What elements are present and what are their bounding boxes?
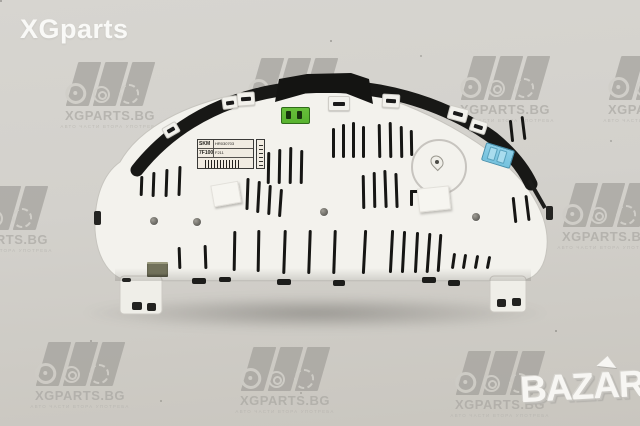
wheel-icon — [65, 83, 86, 104]
screw-icon — [320, 208, 328, 216]
watermark-brand-text: XGPARTS.BG — [552, 229, 640, 244]
side-label-marks — [259, 142, 263, 166]
label-cell: SKM — [198, 140, 214, 148]
watermark-brand-text: XGPARTS.BG — [0, 232, 58, 247]
bottom-clip — [192, 278, 206, 284]
watermark-tagline: АВТО ЧАСТИ ВТОРА УПОТРЕБА — [230, 409, 340, 414]
logo-parallelogram — [608, 56, 640, 100]
vent-slot — [373, 172, 377, 208]
product-photo: XGPARTS.BG АВТО ЧАСТИ ВТОРА УПОТРЕБА XGP… — [0, 0, 640, 426]
bottom-clip — [422, 277, 436, 283]
watermark-tile: XGPARTS.BG АВТО ЧАСТИ ВТОРА УПОТРЕБА — [230, 347, 340, 414]
bearing-icon — [89, 364, 109, 384]
clutch-disc-icon — [0, 210, 2, 227]
vent-slot — [278, 149, 282, 184]
vent-slot — [342, 124, 345, 158]
vent-slot — [332, 128, 335, 158]
screw-icon — [150, 217, 158, 225]
vent-slot — [267, 152, 271, 184]
side-label — [256, 139, 265, 169]
bottom-clip — [219, 277, 231, 282]
edge-notch — [122, 278, 131, 282]
label-cell: F211 — [214, 149, 253, 157]
wheel-icon — [562, 204, 583, 225]
inner-shadow — [115, 268, 531, 281]
part-label: SKM HR030703 7F100 F211 — [197, 139, 254, 169]
instrument-cluster: SKM HR030703 7F100 F211 — [93, 72, 555, 324]
watermark-tile: XGPARTS.BG АВТО ЧАСТИ ВТОРА УПОТРЕБА — [552, 183, 640, 250]
latch-tab-hole — [474, 123, 484, 130]
olive-component — [147, 262, 168, 277]
label-barcode — [205, 160, 241, 168]
vent-slot — [410, 130, 413, 156]
watermark-tile: XGPARTS.BG АВТО ЧАСТИ ВТОРА УПОТРЕБА — [598, 56, 640, 123]
xgparts-logo-icon — [25, 342, 135, 386]
watermark-tagline: АВТО ЧАСТИ ВТОРА УПОТРЕБА — [25, 404, 135, 409]
green-connector — [281, 107, 310, 124]
xgparts-logo-icon — [552, 183, 640, 227]
clutch-disc-icon — [589, 207, 606, 224]
vent-slot — [362, 175, 366, 209]
watermark-brand-text: XGPARTS.BG — [230, 393, 340, 408]
watermark-tile: XGPARTS.BG АВТО ЧАСТИ ВТОРА УПОТРЕБА — [25, 342, 135, 409]
screw-icon — [193, 218, 201, 226]
right-edge-clip — [546, 206, 553, 220]
watermark-brand-text: XGPARTS.BG — [25, 388, 135, 403]
left-edge-clip — [94, 211, 101, 225]
xgparts-logo-icon — [230, 347, 340, 391]
white-plate-right — [417, 185, 451, 212]
teardrop-center-hole — [435, 160, 439, 164]
latch-tab-hole — [241, 97, 251, 102]
foot-hole — [147, 303, 156, 311]
bazar-watermark: BAZAR — [519, 363, 640, 411]
watermark-tagline: АВТО ЧАСТИ ВТОРА УПОТРЕБА — [0, 248, 58, 253]
screw-icon — [472, 213, 480, 221]
cluster-white-body — [95, 87, 547, 281]
site-logo-text: XGparts — [20, 14, 129, 45]
bearing-icon — [12, 208, 32, 228]
vent-slot — [400, 126, 404, 158]
label-cell: HR030703 — [214, 140, 253, 148]
wheel-icon — [608, 77, 629, 98]
mounting-foot-right — [490, 276, 526, 312]
bottom-clip — [277, 279, 291, 285]
latch-tab — [382, 94, 401, 109]
xgparts-logo-icon — [598, 56, 640, 100]
xgparts-logo-icon — [0, 186, 58, 230]
clutch-disc-icon — [62, 366, 79, 383]
latch-tab-hole — [166, 126, 175, 134]
vent-slot — [352, 122, 355, 158]
latch-tab — [328, 96, 350, 111]
vent-slot — [300, 150, 304, 184]
vent-slot — [389, 122, 393, 158]
latch-tab — [237, 91, 256, 106]
clutch-disc-icon — [267, 371, 284, 388]
watermark-tile: XGPARTS.BG АВТО ЧАСТИ ВТОРА УПОТРЕБА — [0, 186, 58, 253]
connector-pin-slot — [297, 111, 302, 119]
vent-slot — [289, 147, 293, 184]
connector-pin-slot — [286, 111, 291, 119]
bearing-icon — [616, 205, 636, 225]
wheel-icon — [240, 368, 261, 389]
vent-slot — [378, 124, 382, 158]
watermark-tagline: АВТО ЧАСТИ ВТОРА УПОТРЕБА — [445, 413, 555, 418]
watermark-tagline: АВТО ЧАСТИ ВТОРА УПОТРЕБА — [598, 118, 640, 123]
vent-slot — [362, 126, 365, 158]
wheel-icon — [455, 372, 476, 393]
label-cell: 7F100 — [198, 149, 214, 157]
foot-hole — [512, 298, 521, 306]
foot-hole — [497, 299, 506, 307]
watermark-brand-text: XGPARTS.BG — [598, 102, 640, 117]
wheel-icon — [35, 363, 56, 384]
watermark-tagline: АВТО ЧАСТИ ВТОРА УПОТРЕБА — [552, 245, 640, 250]
connector-ridge — [496, 149, 507, 164]
latch-tab-hole — [386, 99, 396, 103]
bottom-clip — [333, 280, 345, 286]
bearing-icon — [294, 369, 314, 389]
cluster-body-svg — [93, 72, 555, 324]
latch-tab-hole — [226, 100, 235, 105]
bottom-clip — [448, 280, 460, 286]
bazar-roof-icon — [596, 355, 617, 368]
latch-tab-hole — [333, 102, 345, 106]
foot-hole — [132, 302, 142, 310]
latch-tab-hole — [452, 111, 463, 118]
clutch-disc-icon — [482, 375, 499, 392]
